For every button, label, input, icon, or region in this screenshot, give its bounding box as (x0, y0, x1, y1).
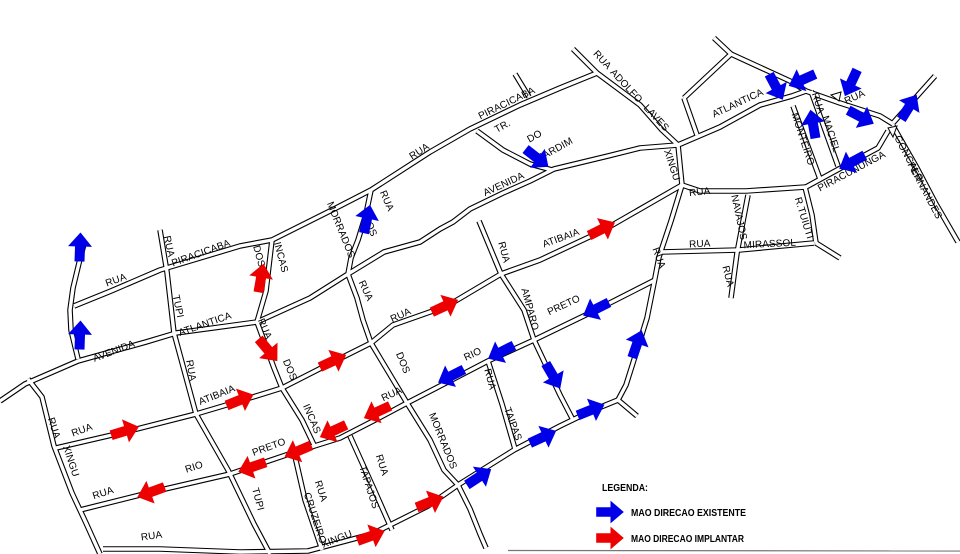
svg-text:MAO DIRECAO EXISTENTE: MAO DIRECAO EXISTENTE (631, 508, 746, 519)
svg-text:RUA: RUA (689, 238, 711, 250)
svg-text:MAO DIRECAO IMPLANTAR: MAO DIRECAO IMPLANTAR (631, 534, 745, 545)
svg-text:LEGENDA:: LEGENDA: (602, 483, 648, 494)
svg-text:RUA: RUA (689, 186, 712, 199)
